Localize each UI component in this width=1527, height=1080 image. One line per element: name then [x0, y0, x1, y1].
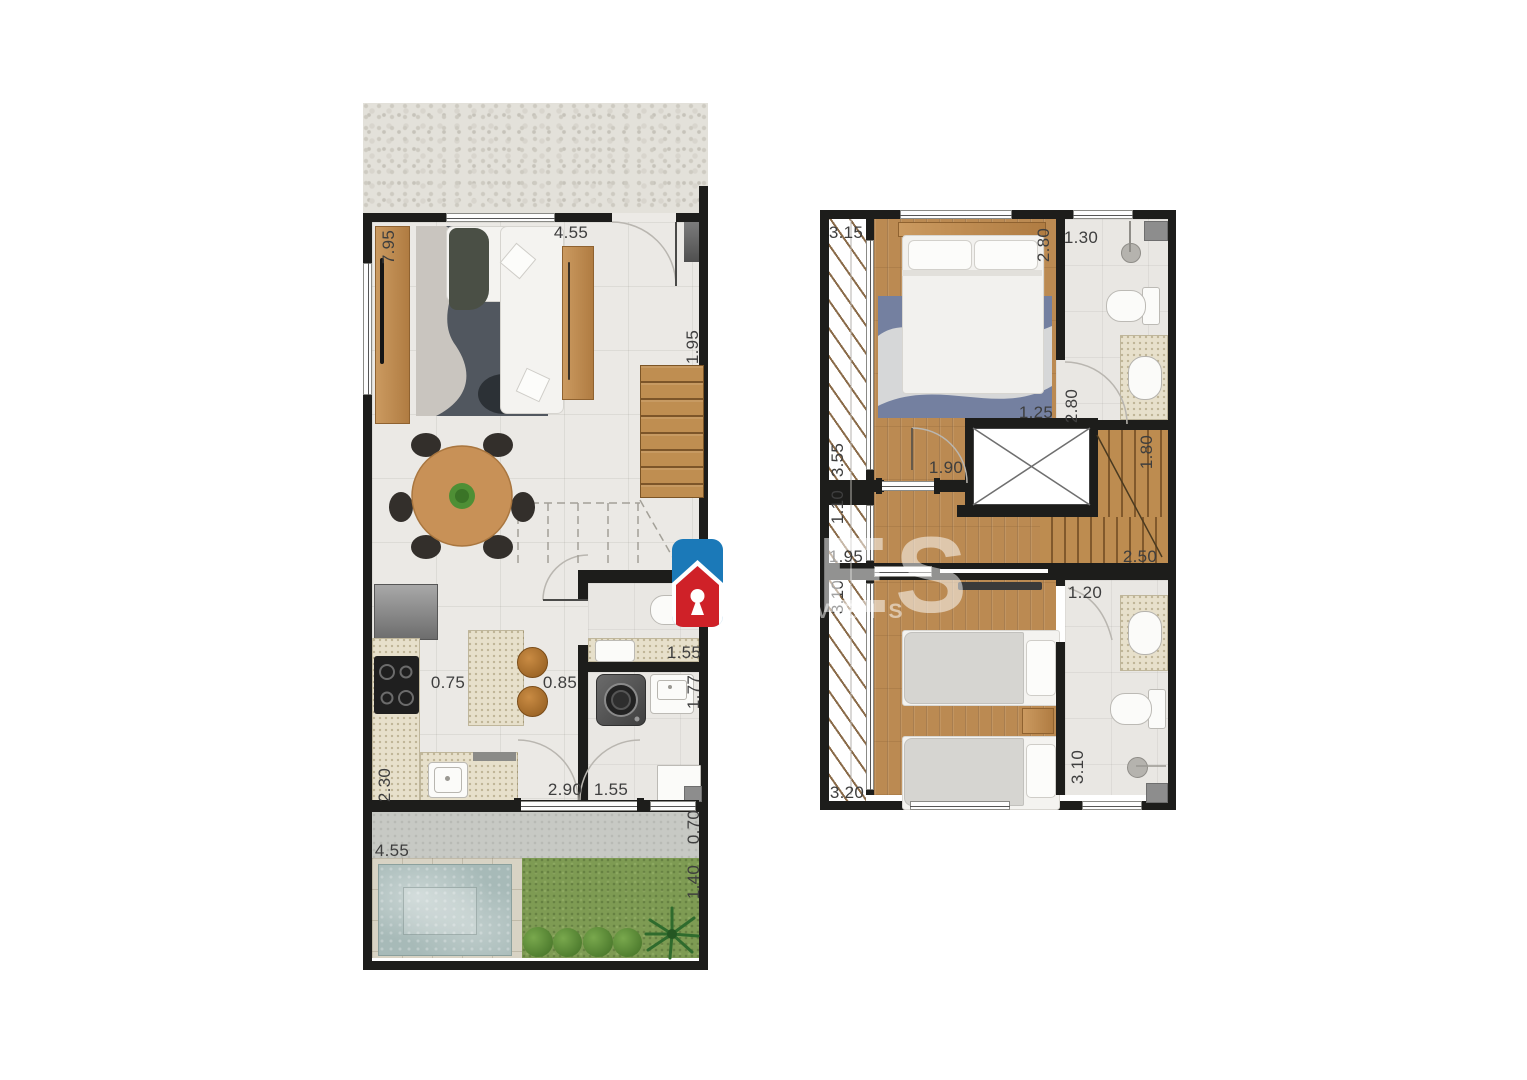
dimension-label: 1.20	[1068, 583, 1102, 603]
dimension-label: 2.50	[1123, 547, 1157, 567]
floorplan-page: { "watermark": { "large_text": "RES", "s…	[0, 0, 1527, 1080]
agency-logo-house-keyhole-icon	[672, 539, 723, 627]
dimension-label: 1.90	[929, 458, 963, 478]
dimension-label: 3.15	[829, 223, 863, 243]
watermark-text-small: IMÓVEIS	[737, 600, 916, 624]
dimension-label: 3.55	[828, 443, 848, 477]
dimension-label: 1.25	[1019, 403, 1053, 423]
dimension-label: 1.30	[1064, 228, 1098, 248]
dimension-label: 1.80	[1137, 435, 1157, 469]
dimension-label: 3.20	[830, 783, 864, 803]
dimension-label: 2.80	[1062, 389, 1082, 423]
dimension-label: 3.10	[1068, 750, 1088, 784]
dimension-label: 2.80	[1034, 228, 1054, 262]
